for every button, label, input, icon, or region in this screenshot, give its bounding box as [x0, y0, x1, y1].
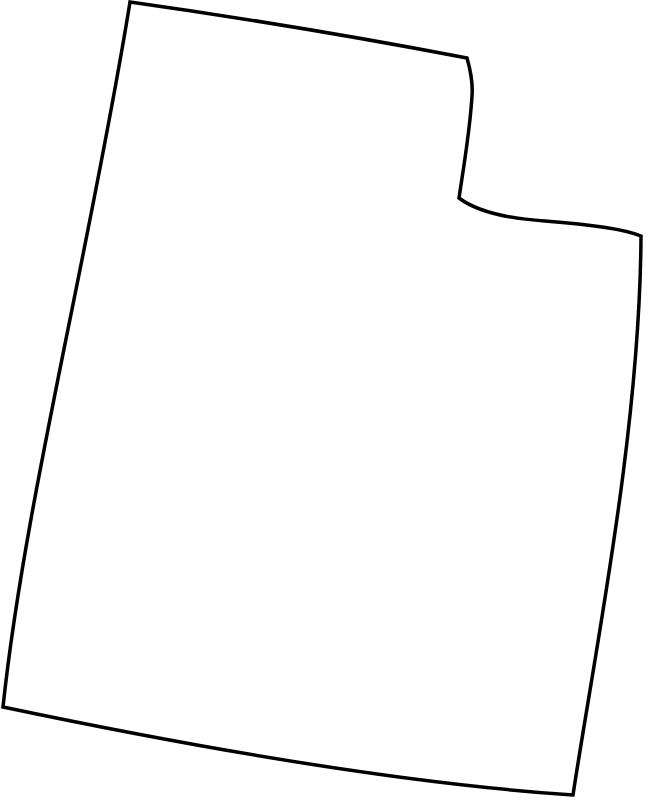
utah-state-border-shape: [3, 2, 641, 795]
utah-outline-map: [0, 0, 649, 800]
map-canvas: [0, 0, 649, 800]
